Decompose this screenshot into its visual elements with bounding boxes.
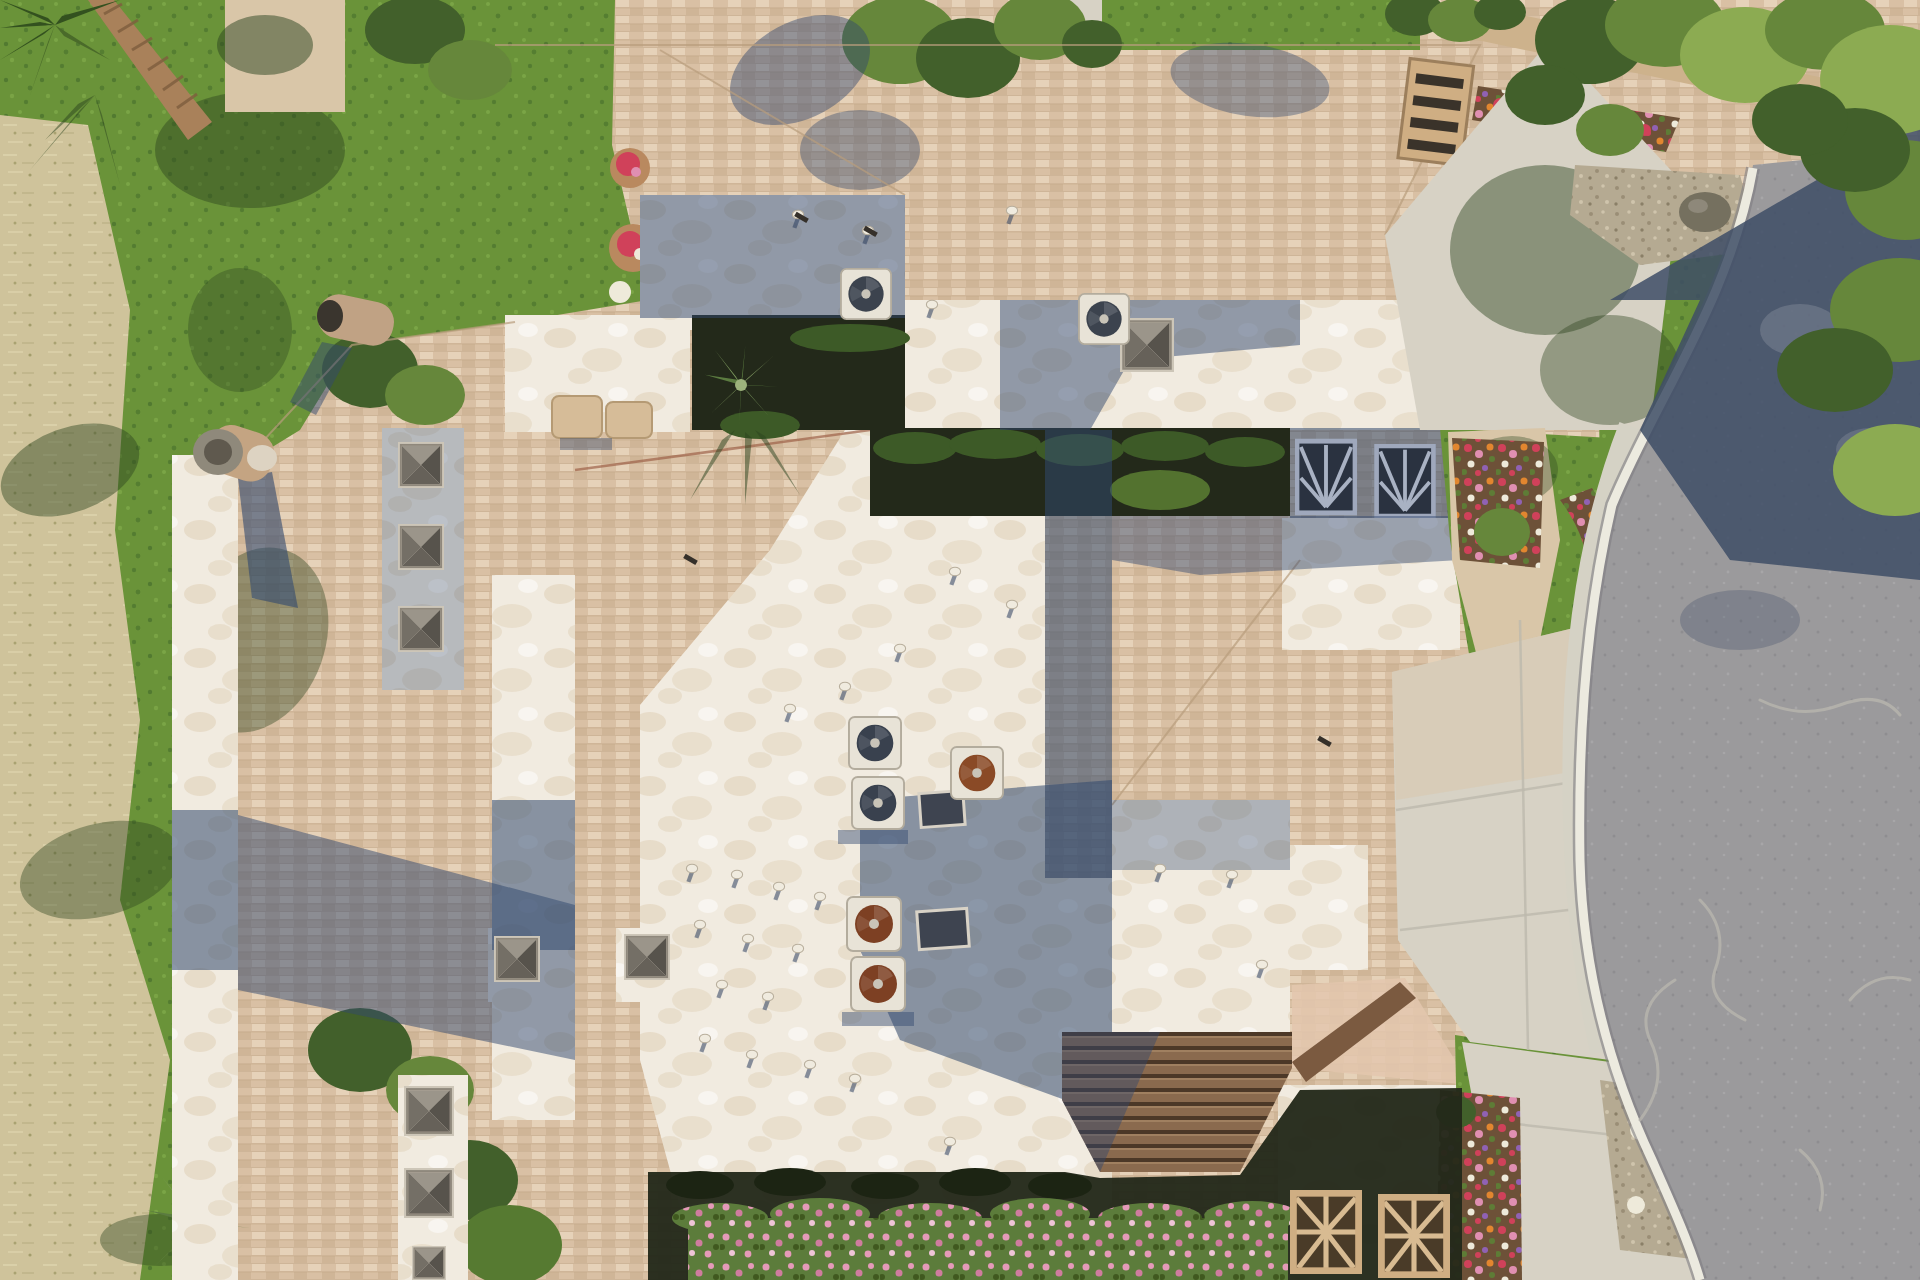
shrub (385, 365, 465, 425)
ac-fan-unit (841, 269, 891, 319)
ac-fan-unit (1079, 294, 1129, 344)
pyramid-skylight-icon (624, 934, 670, 980)
ac-fan-unit (951, 747, 1003, 799)
neighbor-patio-patch (217, 0, 345, 112)
ac-fan-unit (852, 777, 904, 829)
boulder (1679, 192, 1731, 232)
pyramid-skylight-icon (412, 1246, 446, 1280)
sunburst-lattice-block-icon (1378, 1194, 1450, 1278)
ac-fan-unit (851, 957, 905, 1011)
trellis-window-icon (1375, 444, 1436, 518)
chimney-cap (606, 402, 652, 438)
round-shrub (1474, 508, 1530, 556)
boulder-highlight (1688, 199, 1708, 213)
dappled-shadow (1680, 590, 1800, 650)
chimney-cap (552, 396, 602, 438)
tree-canopy (1576, 104, 1644, 156)
pyramid-skylight-icon (404, 1086, 454, 1136)
bright-shrub (1110, 470, 1210, 510)
screenshot-stage: Top-down aerial photo of a Southwestern … (0, 0, 1920, 1280)
pyramid-skylight-icon (398, 606, 444, 652)
white-flower-cluster (609, 281, 631, 303)
aerial-photograph: Top-down aerial photo of a Southwestern … (0, 0, 1920, 1280)
tree-canopy (1777, 328, 1893, 412)
ac-fan-unit (847, 897, 901, 951)
ac-fan-unit (849, 717, 901, 769)
shrub (428, 40, 512, 100)
sunburst-lattice-block-icon (1290, 1190, 1362, 1274)
right-foam-patch (1280, 845, 1368, 970)
trellis-window-icon (1295, 439, 1357, 515)
tree-canopy (1505, 65, 1585, 125)
pyramid-skylight-icon (404, 1168, 454, 1218)
tree-canopy (1752, 84, 1848, 156)
flat-skylight (917, 908, 970, 949)
pyramid-skylight-icon (398, 524, 444, 570)
pyramid-skylight-icon (494, 936, 540, 982)
pyramid-skylight-icon (398, 442, 444, 488)
